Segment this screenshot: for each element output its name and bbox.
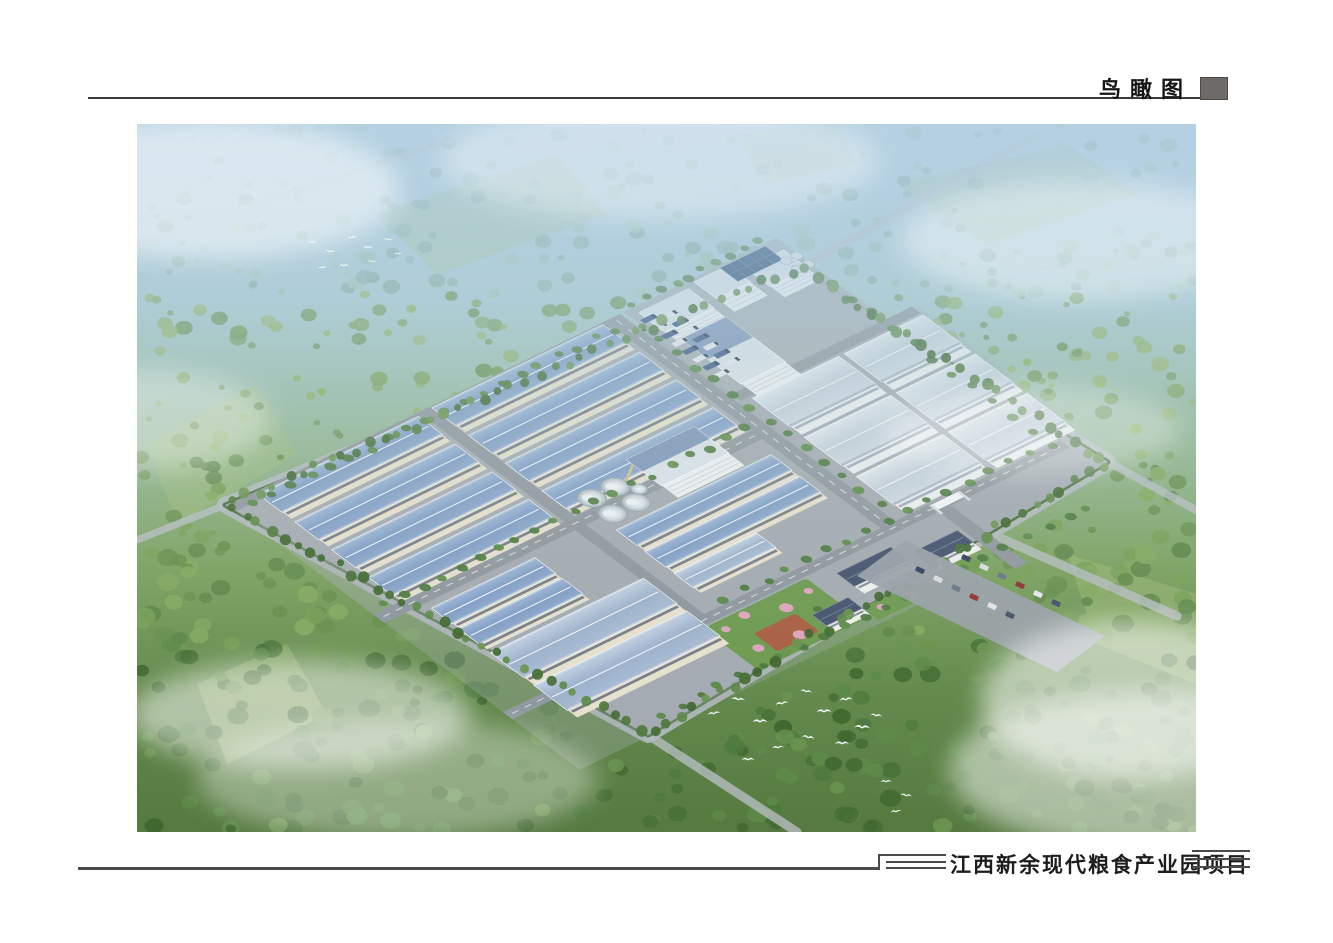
triple-rule-icon bbox=[1192, 866, 1250, 868]
footer-project-title: 江西新余现代粮食产业园项目 bbox=[950, 849, 1190, 879]
aerial-rendering-canvas bbox=[137, 124, 1196, 832]
triple-rule-step-icon bbox=[886, 867, 946, 869]
triple-rule-icon bbox=[1192, 850, 1250, 852]
footer-step-icon bbox=[878, 854, 880, 870]
footer-rule bbox=[78, 867, 878, 870]
aerial-rendering bbox=[137, 124, 1196, 832]
title-block-square-icon bbox=[1200, 77, 1228, 100]
drawing-sheet: 鸟瞰图 江西新余现代粮食产业园项目 bbox=[0, 0, 1333, 943]
triple-rule-step-icon bbox=[878, 854, 946, 856]
page-title: 鸟瞰图 bbox=[1060, 72, 1192, 104]
triple-rule-icon bbox=[1192, 858, 1250, 860]
triple-rule-step-icon bbox=[886, 861, 946, 863]
header-rule bbox=[88, 97, 1200, 99]
